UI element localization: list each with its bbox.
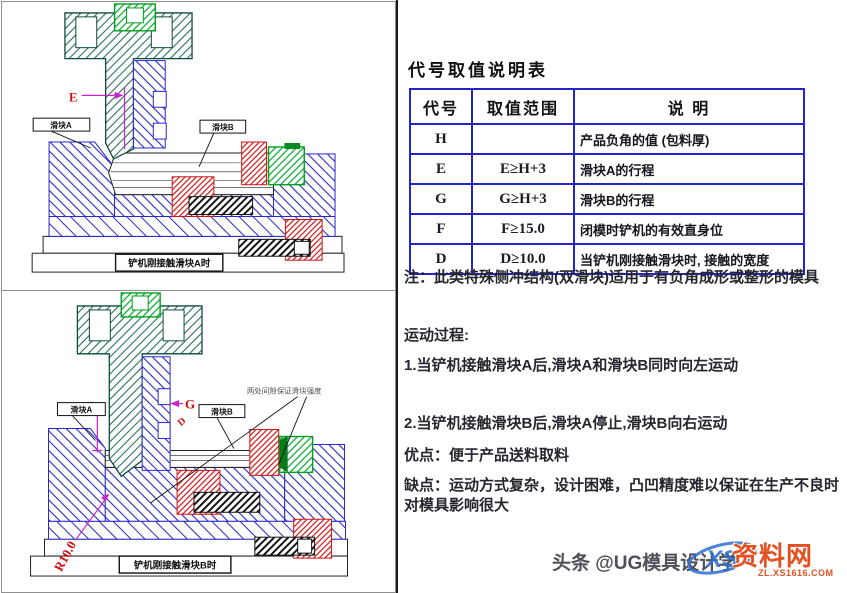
wear-plate-black xyxy=(189,197,253,215)
table-row: H 产品负角的值 (包料厚) xyxy=(410,124,804,154)
dimension-g: G xyxy=(170,397,195,412)
svg-text:铲机刚接触滑块A时: 铲机刚接触滑块A时 xyxy=(128,258,211,269)
diagram-panel-state-b: 两处间隙保证滑块强度 F G D 滑块A 滑块B R10.0 xyxy=(1,290,396,593)
desc-cell: 产品负角的值 (包料厚) xyxy=(574,124,804,154)
svg-text:滑块A: 滑块A xyxy=(50,120,72,130)
table-row: G G≥H+3 滑块B的行程 xyxy=(410,184,804,214)
disadvantage-text: 缺点：运动方式复杂，设计困难，凸凹精度难以保证在生产不良时对模具影响很大 xyxy=(404,476,844,517)
slider-b-head-insert xyxy=(250,430,279,476)
code-cell: F xyxy=(410,214,472,244)
wear-plate-bottom xyxy=(239,239,311,256)
dim-e-label: E xyxy=(69,90,78,104)
caption-state-b: 铲机刚接触滑块B时 xyxy=(119,556,231,573)
code-cell: E xyxy=(410,154,472,184)
table-row: E E≥H+3 滑块A的行程 xyxy=(410,154,804,184)
table-row: F F≥15.0 闭模时铲机的有效直身位 xyxy=(410,214,804,244)
range-cell: G≥H+3 xyxy=(472,184,574,214)
svg-text:滑块B: 滑块B xyxy=(212,122,234,132)
punch-side-block xyxy=(133,61,166,148)
svg-text:滑块B: 滑块B xyxy=(211,407,233,417)
mold-section-diagram-state-a: E D 滑块A 滑块B 铲机刚接触滑块A时 xyxy=(2,2,395,288)
header-code: 代号 xyxy=(410,89,472,124)
svg-text:铲机刚接触滑块B时: 铲机刚接触滑块B时 xyxy=(134,560,217,572)
spring-wedge-green xyxy=(269,143,305,185)
desc-cell: 滑块A的行程 xyxy=(574,154,804,184)
watermark-site-url: ZL.XS1616.COM xyxy=(758,568,834,578)
page: { "left_panel": { "top_diagram": { "capt… xyxy=(0,0,847,593)
svg-text:两处间隙保证滑块强度: 两处间隙保证滑块强度 xyxy=(247,386,322,396)
range-cell: E≥H+3 xyxy=(472,154,574,184)
table-title: 代号取值说明表 xyxy=(408,56,548,81)
mold-section-diagram-state-b: 两处间隙保证滑块强度 F G D 滑块A 滑块B R10.0 xyxy=(2,291,395,590)
caption-state-a: 铲机刚接触滑块A时 xyxy=(116,254,223,271)
motion-process-title: 运动过程: xyxy=(404,326,844,346)
slider-b-head-insert xyxy=(242,142,267,185)
cam-driver-punch xyxy=(65,13,192,159)
die-block-left xyxy=(49,142,115,216)
header-range: 取值范围 xyxy=(472,89,574,124)
motion-step-2: 2.当铲机接触滑块B后,滑块A停止,滑块B向右运动 xyxy=(404,414,844,434)
slider-b-tag: 滑块B xyxy=(199,405,245,449)
svg-text:滑块A: 滑块A xyxy=(71,405,93,415)
top-clamp-green xyxy=(115,4,156,31)
table-header-row: 代号 取值范围 说 明 xyxy=(410,89,804,124)
code-value-table: 代号 取值范围 说 明 H 产品负角的值 (包料厚) E E≥H+3 滑块A的行… xyxy=(409,88,805,275)
advantage-text: 优点：便于产品送料取料 xyxy=(404,446,844,466)
dim-g-label: G xyxy=(185,397,195,412)
motion-step-1: 1.当铲机接触滑块A后,滑块A和滑块B同时向左运动 xyxy=(404,356,844,376)
punch-side-block xyxy=(142,357,170,471)
wear-plate-black xyxy=(194,492,260,512)
dim-d-label: D xyxy=(176,416,189,429)
note-text: 注：此类特殊侧冲结构(双滑块)适用于有负角成形或整形的模具 xyxy=(404,268,844,288)
spring-wedge-green xyxy=(280,436,313,473)
wear-plate-bottom xyxy=(255,537,315,555)
range-cell xyxy=(472,124,574,154)
code-cell: H xyxy=(410,124,472,154)
top-clamp-green xyxy=(121,293,160,317)
header-desc: 说 明 xyxy=(574,89,804,124)
range-cell: F≥15.0 xyxy=(472,214,574,244)
desc-cell: 滑块B的行程 xyxy=(574,184,804,214)
vertical-divider xyxy=(396,0,398,593)
code-cell: G xyxy=(410,184,472,214)
site-watermark: XS 资料网 ZL.XS1616.COM xyxy=(680,534,846,588)
desc-cell: 闭模时铲机的有效直身位 xyxy=(574,214,804,244)
diagram-panel-state-a: E D 滑块A 滑块B 铲机刚接触滑块A时 xyxy=(1,1,396,291)
